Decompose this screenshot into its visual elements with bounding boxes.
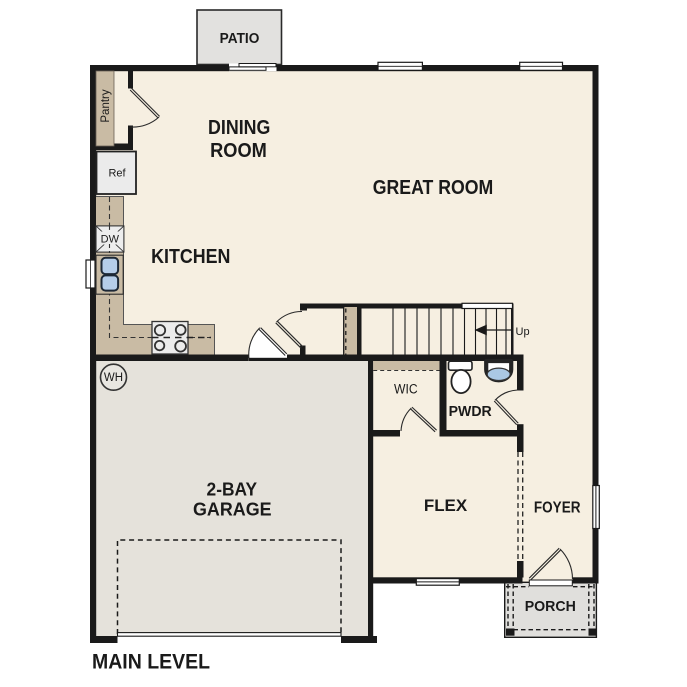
svg-text:MAIN LEVEL: MAIN LEVEL	[92, 651, 210, 674]
svg-text:WH: WH	[104, 372, 123, 384]
svg-text:GREAT ROOM: GREAT ROOM	[373, 177, 494, 199]
svg-text:PWDR: PWDR	[449, 403, 492, 420]
svg-text:PATIO: PATIO	[220, 31, 260, 47]
svg-text:2-BAY: 2-BAY	[207, 479, 258, 500]
svg-text:ROOM: ROOM	[210, 140, 267, 162]
svg-text:PORCH: PORCH	[525, 598, 576, 615]
svg-text:FLEX: FLEX	[424, 496, 468, 515]
svg-text:Up: Up	[516, 326, 530, 338]
svg-text:WIC: WIC	[394, 382, 418, 397]
svg-text:Ref: Ref	[108, 167, 126, 179]
svg-text:DINING: DINING	[208, 117, 270, 139]
svg-text:DW: DW	[101, 234, 120, 246]
svg-text:KITCHEN: KITCHEN	[151, 246, 230, 268]
svg-text:GARAGE: GARAGE	[193, 499, 272, 520]
svg-text:FOYER: FOYER	[534, 500, 581, 517]
svg-text:Pantry: Pantry	[100, 89, 112, 122]
